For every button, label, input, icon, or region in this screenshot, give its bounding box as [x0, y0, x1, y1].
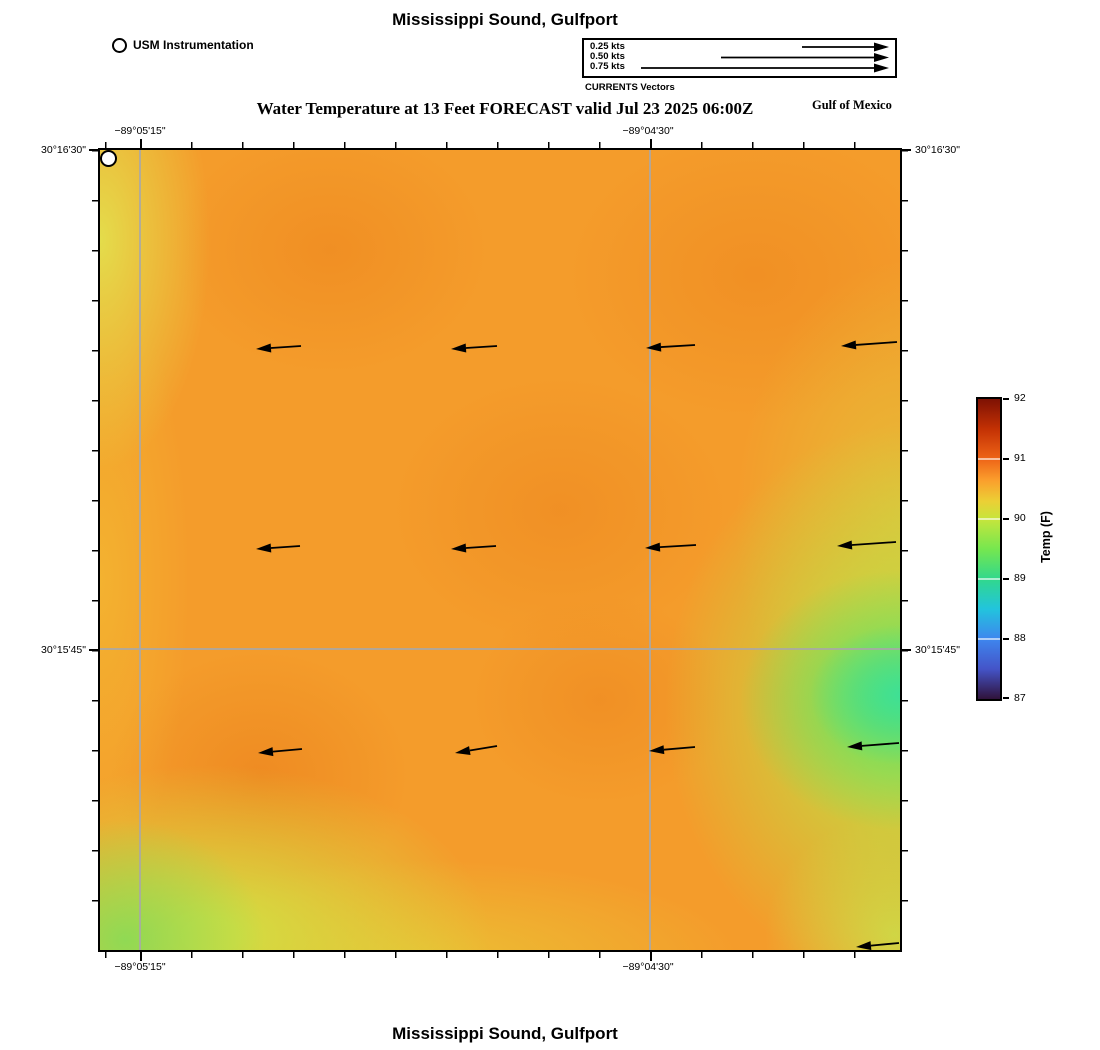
lon-label-bottom-left: −89°05'15"	[114, 961, 165, 973]
lat-label-right-bottom: 30°15'45"	[915, 644, 960, 656]
colorbar-tick	[1003, 398, 1009, 400]
colorbar-tick-label: 91	[1014, 452, 1026, 464]
temperature-colorbar	[976, 397, 1002, 701]
colorbar-axis-label: Temp (F)	[1039, 511, 1053, 563]
colorbar-tick-label: 92	[1014, 392, 1026, 404]
colorbar-tick-label: 87	[1014, 692, 1026, 704]
currents-legend-box: 0.25 kts 0.50 kts 0.75 kts	[582, 38, 897, 78]
colorbar-tick-label: 89	[1014, 572, 1026, 584]
page-title: Mississippi Sound, Gulfport	[5, 10, 1005, 30]
colorbar-tick-label: 88	[1014, 632, 1026, 644]
usm-legend-label: USM Instrumentation	[133, 38, 254, 52]
major-tick	[902, 149, 911, 151]
lon-label-bottom-right: −89°04'30"	[622, 961, 673, 973]
lon-label-top-left: −89°05'15"	[114, 125, 165, 137]
lat-label-right-top: 30°16'30"	[915, 144, 960, 156]
major-tick	[140, 952, 142, 961]
colorbar-tick	[1003, 458, 1009, 460]
temperature-map	[98, 148, 902, 952]
major-tick	[140, 139, 142, 148]
colorbar-tick	[1003, 518, 1009, 520]
currents-legend-arrows	[584, 40, 895, 75]
current-vector-layer	[100, 150, 900, 950]
colorbar-gridline	[978, 458, 1000, 460]
colorbar-gridline	[978, 578, 1000, 580]
station-marker-icon	[112, 38, 127, 53]
currents-legend-caption: CURRENTS Vectors	[585, 82, 675, 93]
major-tick	[89, 649, 98, 651]
colorbar-gridline	[978, 638, 1000, 640]
bottom-axis-minor-ticks	[100, 952, 900, 958]
legend-speed-075: 0.75 kts	[590, 62, 625, 72]
lon-label-top-right: −89°04'30"	[622, 125, 673, 137]
colorbar-tick	[1003, 638, 1009, 640]
major-tick	[650, 952, 652, 961]
major-tick	[650, 139, 652, 148]
lat-label-left-top: 30°16'30"	[0, 144, 86, 156]
major-tick	[89, 149, 98, 151]
footer-title: Mississippi Sound, Gulfport	[5, 1024, 1005, 1044]
major-tick	[902, 649, 911, 651]
colorbar-gridline	[978, 518, 1000, 520]
gulf-of-mexico-label: Gulf of Mexico	[812, 98, 892, 113]
top-axis-minor-ticks	[100, 142, 900, 148]
left-axis-minor-ticks	[92, 150, 98, 950]
colorbar-tick	[1003, 578, 1009, 580]
colorbar-tick-label: 90	[1014, 512, 1026, 524]
lat-label-left-bottom: 30°15'45"	[0, 644, 86, 656]
right-axis-minor-ticks	[902, 150, 908, 950]
colorbar-tick	[1003, 697, 1009, 699]
